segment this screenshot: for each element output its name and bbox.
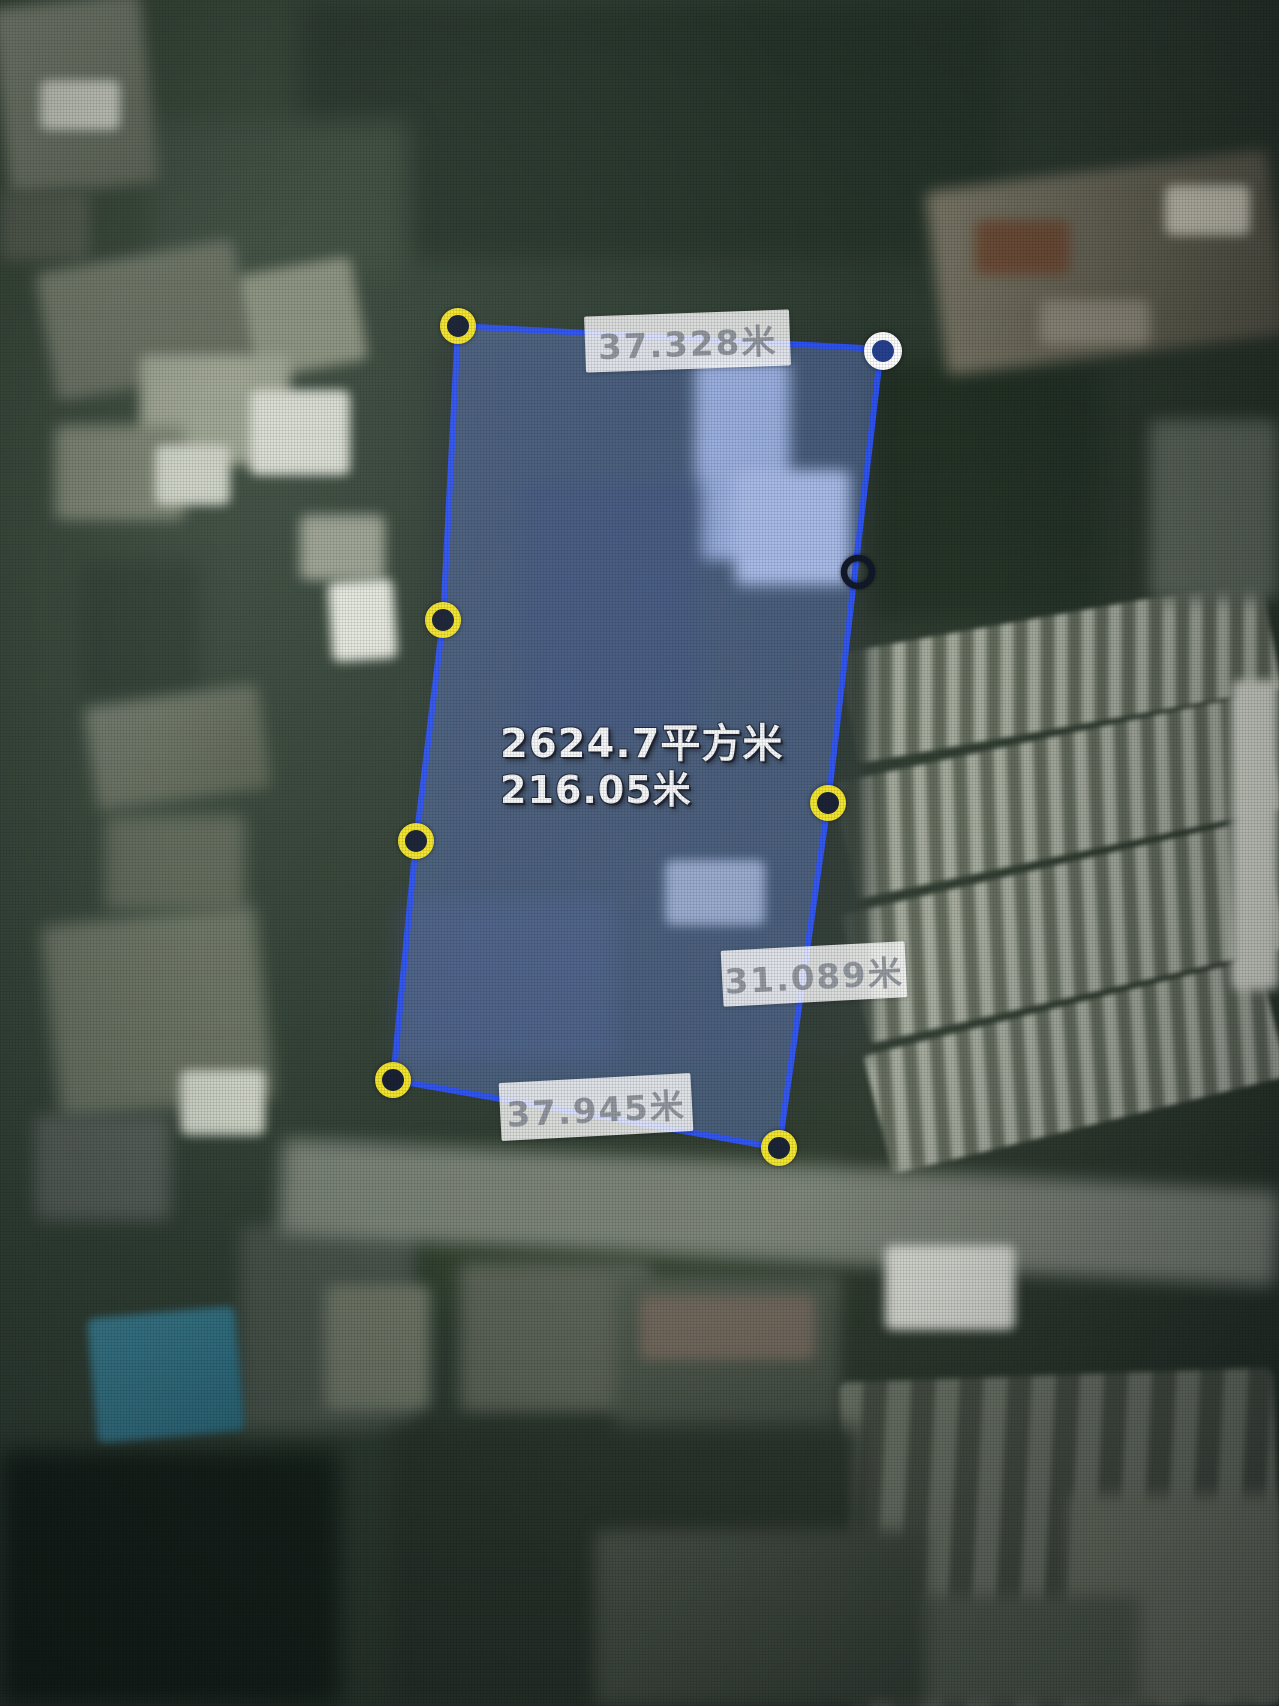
edge-length-label-bottom: 37.945米	[499, 1073, 694, 1141]
vertex-handle-left-upper[interactable]	[429, 606, 458, 635]
vertex-handle-top-left[interactable]	[444, 312, 473, 341]
measurement-summary: 2624.7平方米 216.05米	[500, 720, 783, 814]
perimeter-value: 216.05米	[500, 768, 783, 814]
edge-length-label-top: 37.328米	[584, 309, 791, 372]
edge-length-label-right: 31.089米	[721, 941, 908, 1007]
vertex-handle-top-right-active[interactable]	[868, 336, 898, 366]
vertex-handle-right-mid[interactable]	[814, 789, 843, 818]
vertex-handle-bottom-right[interactable]	[765, 1134, 794, 1163]
vertex-handle-bottom-left[interactable]	[379, 1066, 408, 1095]
area-value: 2624.7平方米	[500, 720, 783, 768]
vertex-handle-left-lower[interactable]	[402, 827, 431, 856]
satellite-map-view[interactable]: 37.328米 31.089米 37.945米 2624.7平方米 216.05…	[0, 0, 1279, 1706]
